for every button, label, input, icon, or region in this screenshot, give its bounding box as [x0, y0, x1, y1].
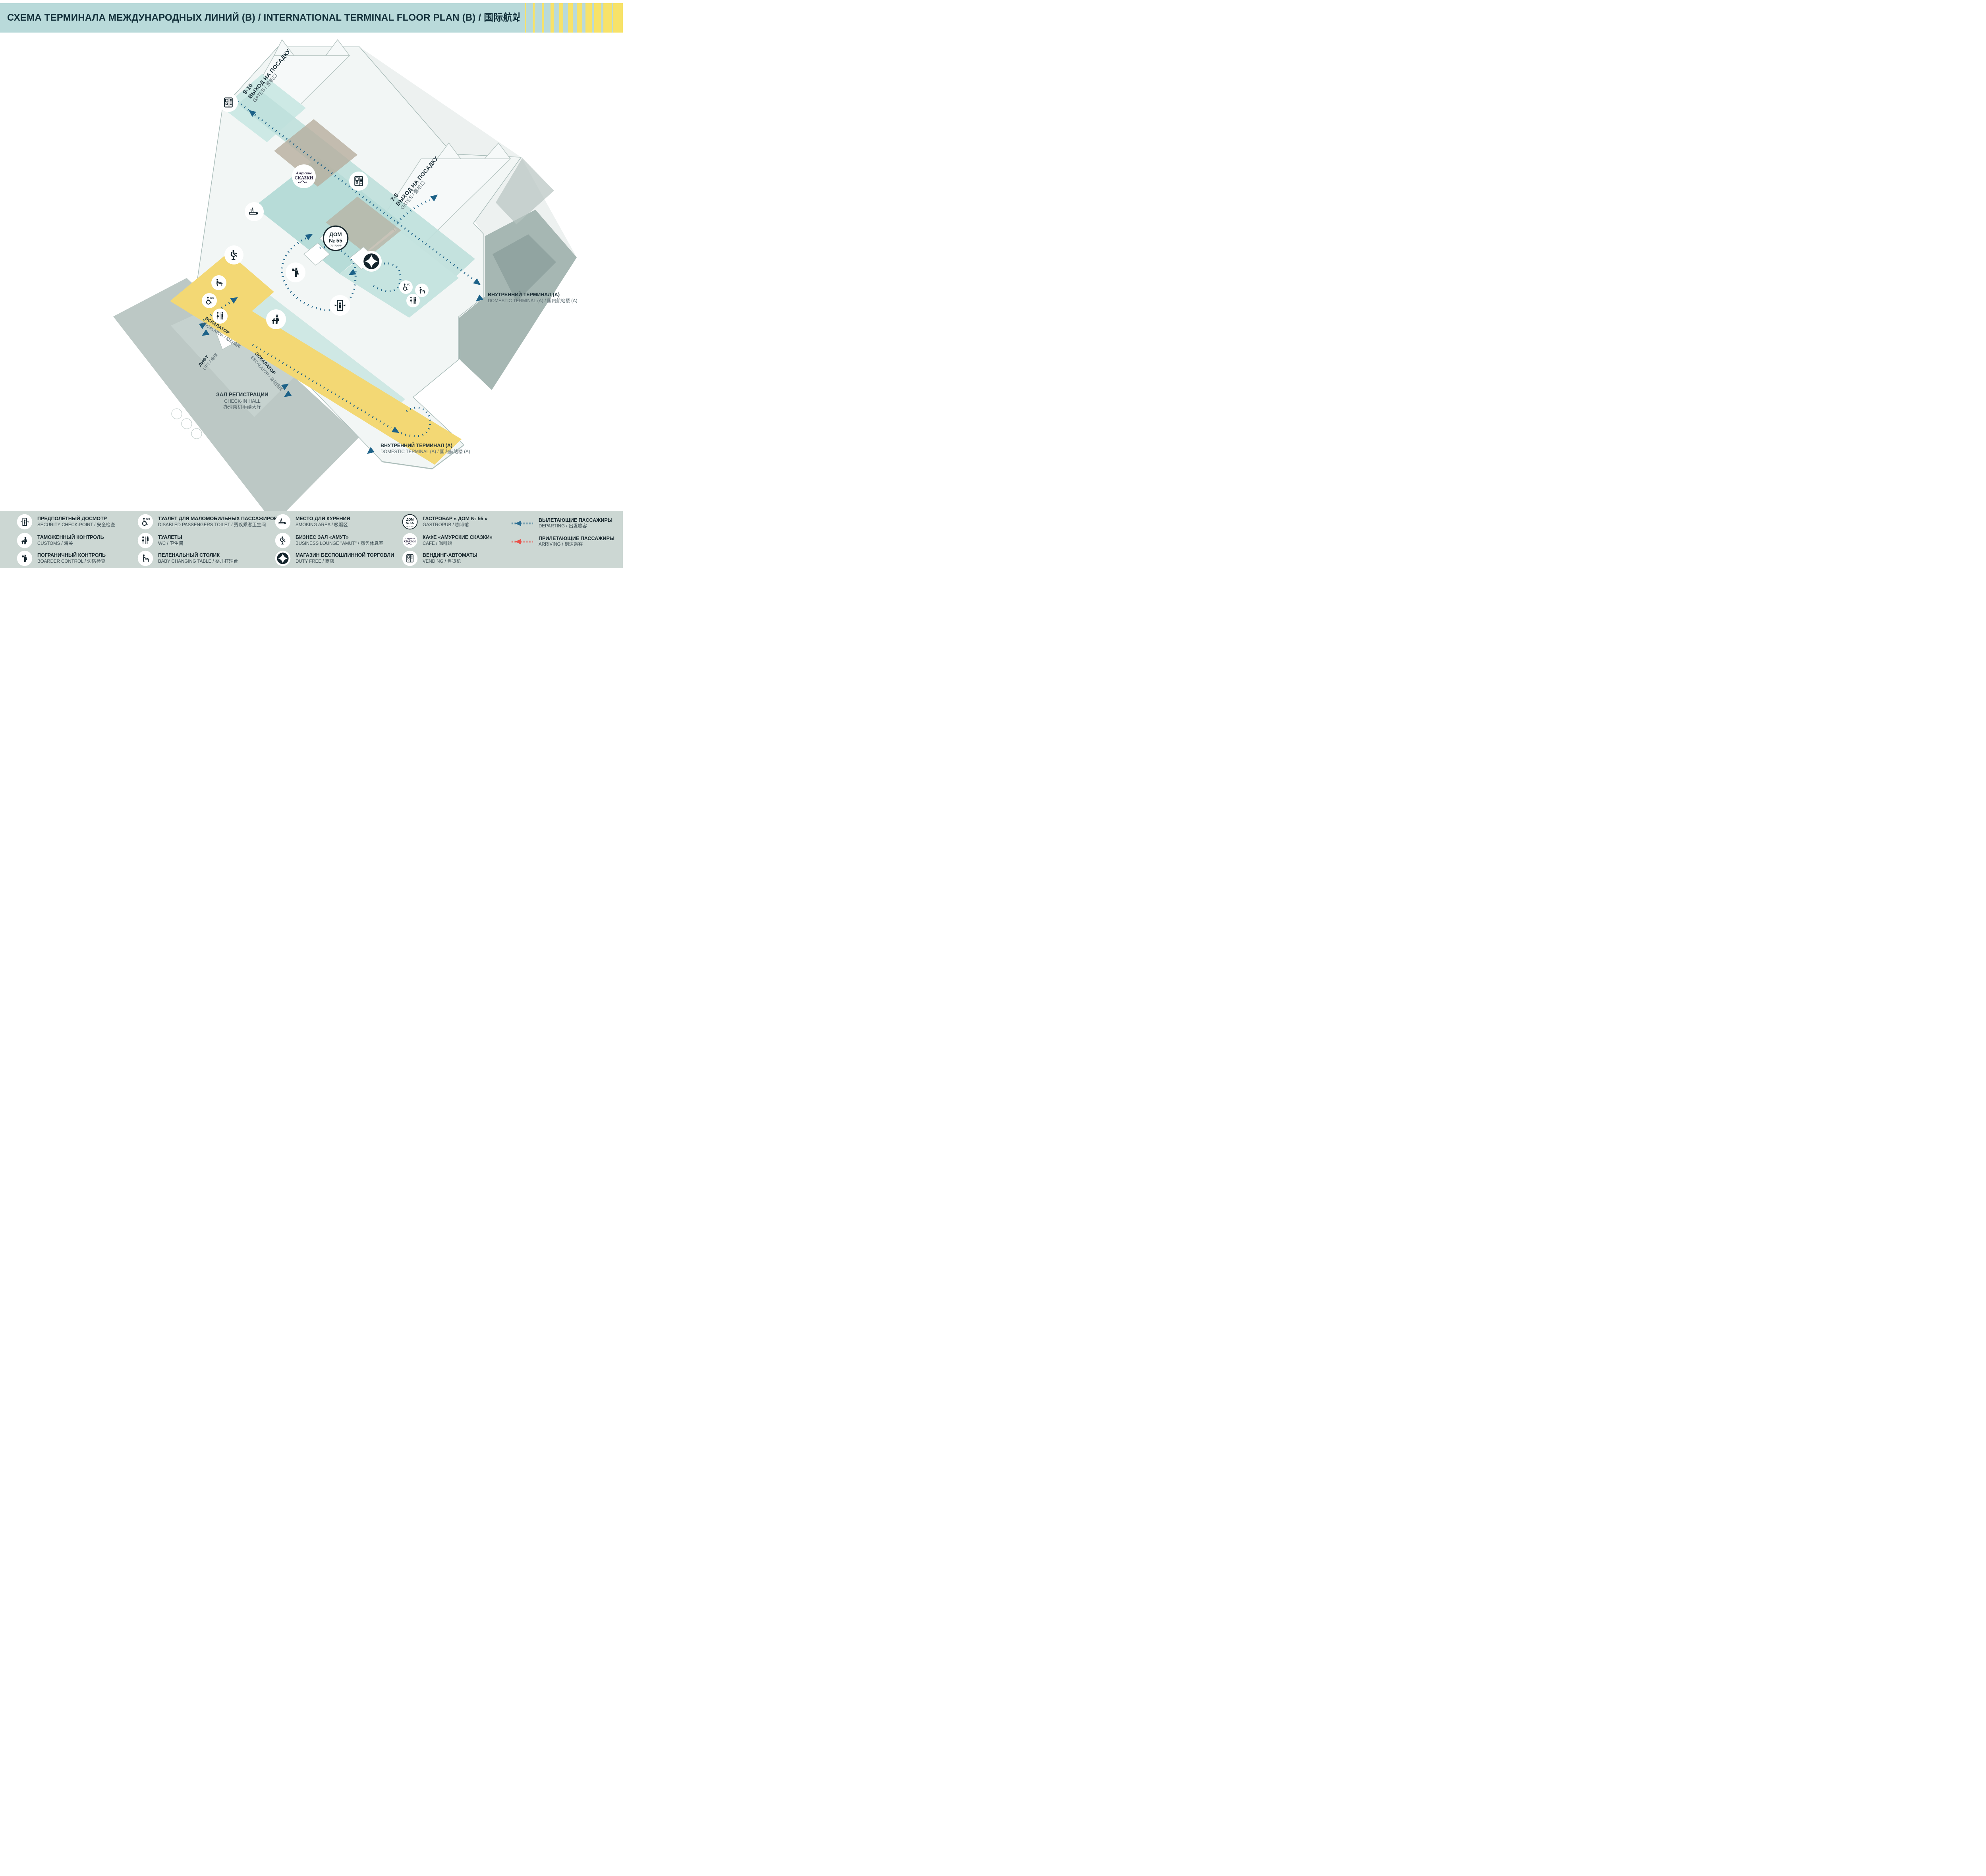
check-in-hall-label: ЗАЛ РЕГИСТРАЦИИ CHECK-IN HALL 办理乘机手续大厅 — [201, 391, 284, 411]
domestic-terminal-label-right: ВНУТРЕННИЙ ТЕРМИНАЛ (А) DOMESTIC TERMINA… — [488, 292, 578, 304]
wc-icon — [406, 294, 420, 307]
legend-item: ТАМОЖЕННЫЙ КОНТРОЛЬCUSTOMS / 海关 — [17, 533, 104, 548]
cafe-skazki-icon — [292, 164, 316, 188]
customs-icon — [266, 309, 286, 329]
legend-item: КАФЕ «АМУРСКИЕ СКАЗКИ»CAFE / 咖啡馆 — [402, 533, 493, 548]
legend-item: МЕСТО ДЛЯ КУРЕНИЯSMOKING AREA / 吸烟区 — [275, 514, 350, 530]
legend-strip: ПРЕДПОЛЁТНЫЙ ДОСМОТРSECURITY CHECK-POINT… — [0, 511, 623, 568]
border-control-icon — [17, 550, 33, 566]
vending-icon — [219, 93, 238, 112]
disabled-toilet-icon — [202, 293, 217, 308]
wc-icon — [137, 533, 153, 548]
duty-free-icon — [275, 550, 291, 566]
disabled-toilet-icon — [137, 514, 153, 530]
security-checkpoint-icon — [330, 295, 350, 316]
legend-flow-departing: ВЫЛЕТАЮЩИЕ ПАССАЖИРЫDEPARTING / 出发旅客 — [511, 517, 612, 529]
floor-plan-poster: { "header": { "title": "СХЕМА ТЕРМИНАЛА … — [0, 0, 623, 568]
floor-plan-svg: WC — [0, 32, 623, 511]
duty-free-icon — [361, 251, 382, 272]
arriving-arrow-icon — [511, 538, 534, 545]
customs-icon — [17, 533, 33, 548]
page-title: СХЕМА ТЕРМИНАЛА МЕЖДУНАРОДНЫХ ЛИНИЙ (В) … — [7, 3, 577, 33]
legend-item: ПОГРАНИЧНЫЙ КОНТРОЛЬBOARDER CONTROL / 边防… — [17, 550, 106, 566]
cafe-skazki-icon — [402, 533, 418, 548]
header-band: СХЕМА ТЕРМИНАЛА МЕЖДУНАРОДНЫХ ЛИНИЙ (В) … — [0, 3, 623, 33]
border-control-icon — [286, 262, 305, 282]
baby-changing-icon — [137, 550, 153, 566]
legend-item: БИЗНЕС ЗАЛ «АМУТ»BUSINESS LOUNGE "AMUT" … — [275, 533, 383, 548]
gastropub-dom55-icon — [323, 226, 348, 250]
business-lounge-icon — [275, 533, 291, 548]
domestic-terminal-label-bottom: ВНУТРЕННИЙ ТЕРМИНАЛ (А) DOMESTIC TERMINA… — [381, 443, 470, 455]
gastropub-dom55-icon — [402, 514, 418, 530]
smoking-area-icon — [275, 514, 291, 530]
legend-flow-arriving: ПРИЛЕТАЮЩИЕ ПАССАЖИРЫARRIVING / 到达乘客 — [511, 535, 614, 548]
terminal-map: WC — [0, 32, 623, 511]
header-stripes-decoration — [520, 3, 623, 33]
legend-item: ВЕНДИНГ-АВТОМАТЫVENDING / 售货机 — [402, 550, 477, 566]
smoking-area-icon — [245, 202, 264, 221]
legend-item: ТУАЛЕТ ДЛЯ МАЛОМОБИЛЬНЫХ ПАССАЖИРОВDISAB… — [137, 514, 278, 530]
legend-item: ГАСТРОБАР « ДОМ № 55 »GASTROPUB / 咖啡馆 — [402, 514, 487, 530]
legend-item: ПЕЛЕНАЛЬНЫЙ СТОЛИКBABY CHANGING TABLE / … — [137, 550, 238, 566]
disabled-toilet-icon — [399, 280, 413, 294]
vending-icon — [402, 550, 418, 566]
security-checkpoint-icon — [17, 514, 33, 530]
legend-item: ТУАЛЕТЫWC / 卫生间 — [137, 533, 183, 548]
baby-changing-icon — [415, 284, 429, 297]
business-lounge-icon — [224, 245, 243, 264]
baby-changing-icon — [211, 275, 226, 290]
departing-arrow-icon — [511, 520, 534, 527]
legend-item: МАГАЗИН БЕСПОШЛИННОЙ ТОРГОВЛИDUTY FREE /… — [275, 550, 394, 566]
legend-item: ПРЕДПОЛЁТНЫЙ ДОСМОТРSECURITY CHECK-POINT… — [17, 514, 115, 530]
vending-icon — [349, 172, 368, 191]
